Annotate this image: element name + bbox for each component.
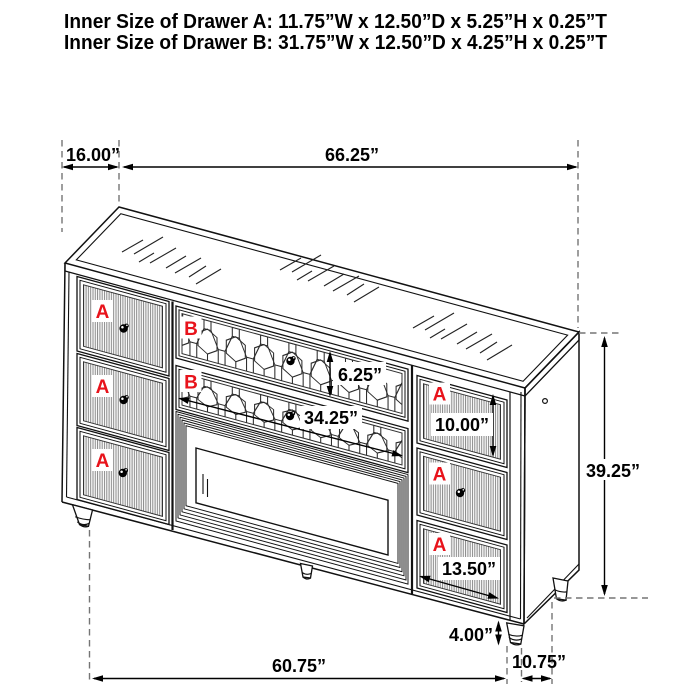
svg-text:39.25”: 39.25” [586,461,640,481]
svg-text:B: B [184,373,198,394]
svg-text:10.00”: 10.00” [435,415,489,435]
svg-text:4.00”: 4.00” [449,625,493,645]
svg-text:A: A [433,385,447,406]
svg-text:34.25”: 34.25” [304,408,358,428]
svg-text:13.50”: 13.50” [442,559,496,579]
svg-text:B: B [184,319,198,340]
svg-text:Inner Size of Drawer B: 31.75”: Inner Size of Drawer B: 31.75”W x 12.50”… [64,32,607,54]
svg-text:16.00”: 16.00” [66,145,120,165]
svg-text:A: A [96,451,110,472]
svg-text:A: A [433,535,447,556]
svg-text:60.75”: 60.75” [272,656,326,676]
svg-text:A: A [96,377,110,398]
svg-text:Inner Size of Drawer A: 11.75”: Inner Size of Drawer A: 11.75”W x 12.50”… [64,11,607,33]
svg-text:6.25”: 6.25” [338,365,382,385]
svg-text:66.25”: 66.25” [325,145,379,165]
svg-text:A: A [433,465,447,486]
svg-text:A: A [96,302,110,323]
svg-text:10.75”: 10.75” [512,652,566,672]
